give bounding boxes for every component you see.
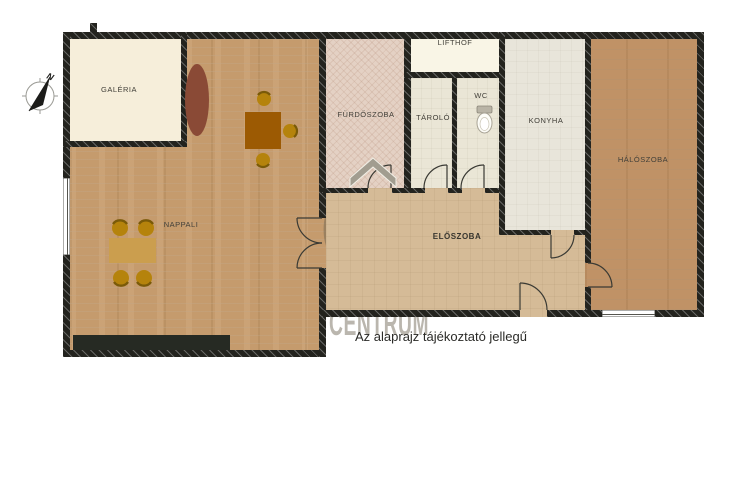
label-galeria: GALÉRIA: [101, 85, 137, 94]
wall-haloszoba-left-upper: [585, 32, 591, 263]
wall-bottom-eloszoba-a: [322, 310, 520, 317]
room-floor-konyha: [505, 39, 585, 230]
label-konyha: KONYHA: [529, 116, 564, 125]
label-nappali: NAPPALI: [164, 220, 199, 229]
wall-konyha-bottom-a: [499, 230, 551, 235]
room-floor-tarolo: [411, 78, 452, 188]
wall-bottom-haloszoba: [655, 310, 704, 317]
disclaimer-text: Az alaprajz tájékoztató jellegű: [355, 329, 527, 344]
wall-konyha-left: [499, 32, 505, 235]
label-lifthof: LIFTHOF: [438, 38, 473, 47]
label-furdoszoba: FÜRDŐSZOBA: [337, 110, 394, 119]
compass-icon: N: [22, 71, 58, 114]
label-tarolo: TÁROLÓ: [416, 113, 450, 122]
label-wc: WC: [474, 91, 488, 100]
wall-galeria-right: [181, 32, 187, 147]
wall-galeria-bottom: [63, 141, 187, 147]
window-nappali-left: [63, 178, 70, 255]
wall-left-upper: [63, 32, 70, 178]
wall-tarolo-wc-divider: [452, 78, 457, 193]
wall-wetrooms-bottom-c: [448, 188, 462, 193]
compass-north-label: N: [45, 71, 56, 83]
wall-bottom-eloszoba-b: [547, 310, 602, 317]
window-haloszoba-bottom: [602, 310, 655, 317]
wall-furdo-right: [404, 32, 411, 193]
wall-right-outer: [697, 32, 704, 317]
chimney-mark: [90, 23, 97, 32]
wall-left-lower: [63, 255, 70, 357]
floor-plan: OC OTTHON CENTRUM: [0, 0, 750, 500]
wall-top-outer: [63, 32, 704, 39]
label-eloszoba: ELŐSZOBA: [433, 232, 481, 241]
label-haloszoba: HÁLÓSZOBA: [618, 155, 668, 164]
wall-wetrooms-bottom-a: [322, 188, 368, 193]
wall-bottom-nappali: [63, 350, 325, 357]
wall-wetrooms-bottom-b: [392, 188, 425, 193]
room-floor-haloszoba: [585, 39, 697, 310]
